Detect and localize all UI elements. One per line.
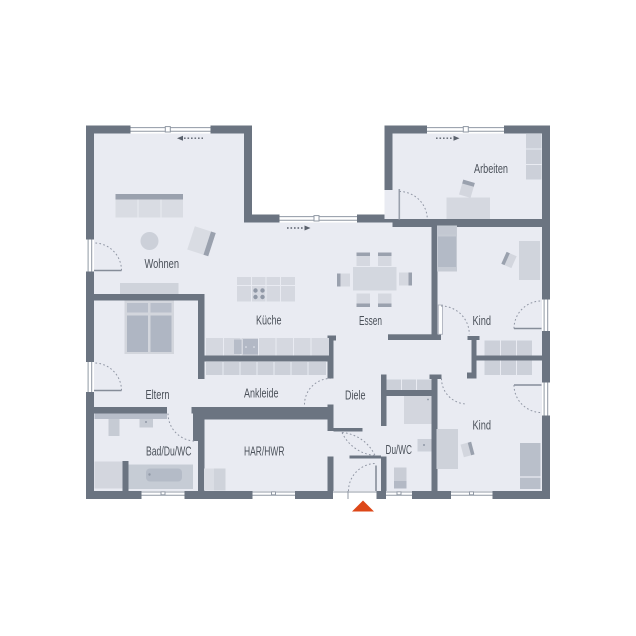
svg-text:Du/WC: Du/WC [386, 443, 413, 457]
svg-text:HAR/HWR: HAR/HWR [244, 444, 285, 458]
svg-text:Diele: Diele [345, 388, 366, 402]
svg-text:Eltern: Eltern [146, 388, 170, 402]
svg-text:Arbeiten: Arbeiten [474, 162, 508, 176]
svg-text:Kind: Kind [473, 419, 492, 433]
svg-text:Küche: Küche [256, 313, 282, 327]
svg-text:Bad/Du/WC: Bad/Du/WC [146, 445, 192, 459]
svg-text:Kind: Kind [473, 314, 492, 328]
svg-text:Ankleide: Ankleide [244, 386, 279, 400]
svg-text:Wohnen: Wohnen [145, 257, 180, 271]
svg-text:Essen: Essen [359, 314, 382, 328]
